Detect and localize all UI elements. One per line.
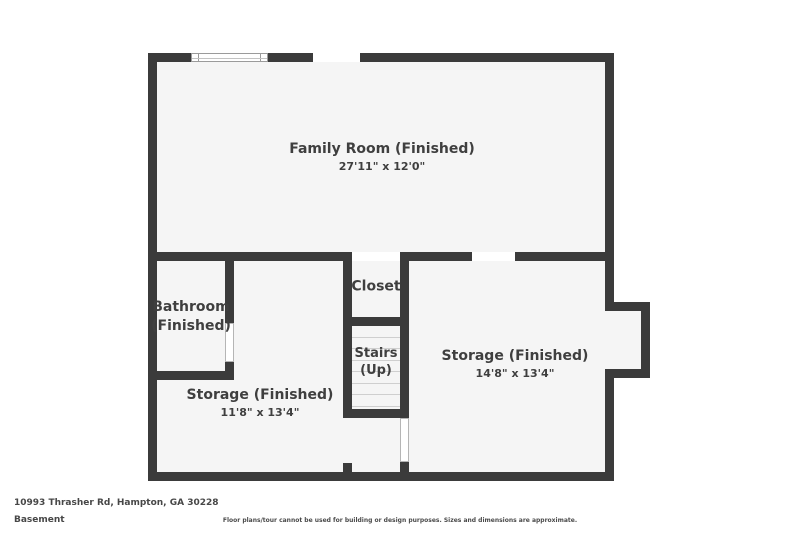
storage-right-name: Storage (Finished) bbox=[442, 347, 589, 366]
bathroom-name-line1: Bathroom bbox=[151, 298, 231, 317]
room-label-closet: Closet bbox=[351, 278, 400, 297]
room-label-family-room: Family Room (Finished) 27'11" x 12'0" bbox=[289, 140, 475, 174]
opening-closet-entry bbox=[352, 252, 400, 261]
stair-tread bbox=[352, 406, 400, 407]
understairs-door-opening bbox=[400, 418, 409, 462]
room-label-storage-right: Storage (Finished) 14'8" x 13'4" bbox=[442, 347, 589, 381]
wall-bathroom-bottom bbox=[148, 371, 234, 380]
wall-exterior-right-lower bbox=[605, 369, 614, 481]
stair-tread bbox=[352, 394, 400, 395]
stairs-name-line2: (Up) bbox=[355, 362, 398, 379]
window-icon bbox=[191, 53, 268, 62]
wall-exterior-right-upper bbox=[605, 53, 614, 311]
stair-tread bbox=[352, 383, 400, 384]
wall-stub-right-of-doorway bbox=[400, 462, 409, 472]
footer-disclaimer: Floor plans/tour cannot be used for buil… bbox=[0, 517, 800, 524]
bathroom-name-line2: (Finished) bbox=[151, 317, 231, 336]
wall-closet-bottom bbox=[343, 317, 409, 326]
floor-plan-canvas: Family Room (Finished) 27'11" x 12'0" Ba… bbox=[0, 0, 800, 533]
family-room-name: Family Room (Finished) bbox=[289, 140, 475, 159]
room-label-stairs: Stairs (Up) bbox=[355, 345, 398, 379]
wall-stub-under-stairs bbox=[343, 463, 352, 472]
storage-right-dims: 14'8" x 13'4" bbox=[442, 366, 589, 381]
opening-top-wall bbox=[313, 53, 360, 62]
storage-left-dims: 11'8" x 13'4" bbox=[187, 405, 334, 420]
footer-address: 10993 Thrasher Rd, Hampton, GA 30228 bbox=[14, 498, 219, 508]
opening-storage-right-entry bbox=[472, 252, 515, 261]
room-label-bathroom: Bathroom (Finished) bbox=[151, 298, 231, 336]
wall-bumpout-right bbox=[641, 302, 650, 378]
family-room-dims: 27'11" x 12'0" bbox=[289, 159, 475, 174]
wall-exterior-bottom bbox=[148, 472, 614, 481]
stair-tread bbox=[352, 337, 400, 338]
window-mid-line bbox=[192, 58, 267, 59]
wall-stairwell-right bbox=[400, 252, 409, 418]
closet-name: Closet bbox=[351, 278, 400, 297]
stairs-name-line1: Stairs bbox=[355, 345, 398, 362]
room-label-storage-left: Storage (Finished) 11'8" x 13'4" bbox=[187, 386, 334, 420]
wall-exterior-left bbox=[148, 53, 157, 481]
storage-left-name: Storage (Finished) bbox=[187, 386, 334, 405]
wall-stairs-bottom bbox=[343, 409, 409, 418]
